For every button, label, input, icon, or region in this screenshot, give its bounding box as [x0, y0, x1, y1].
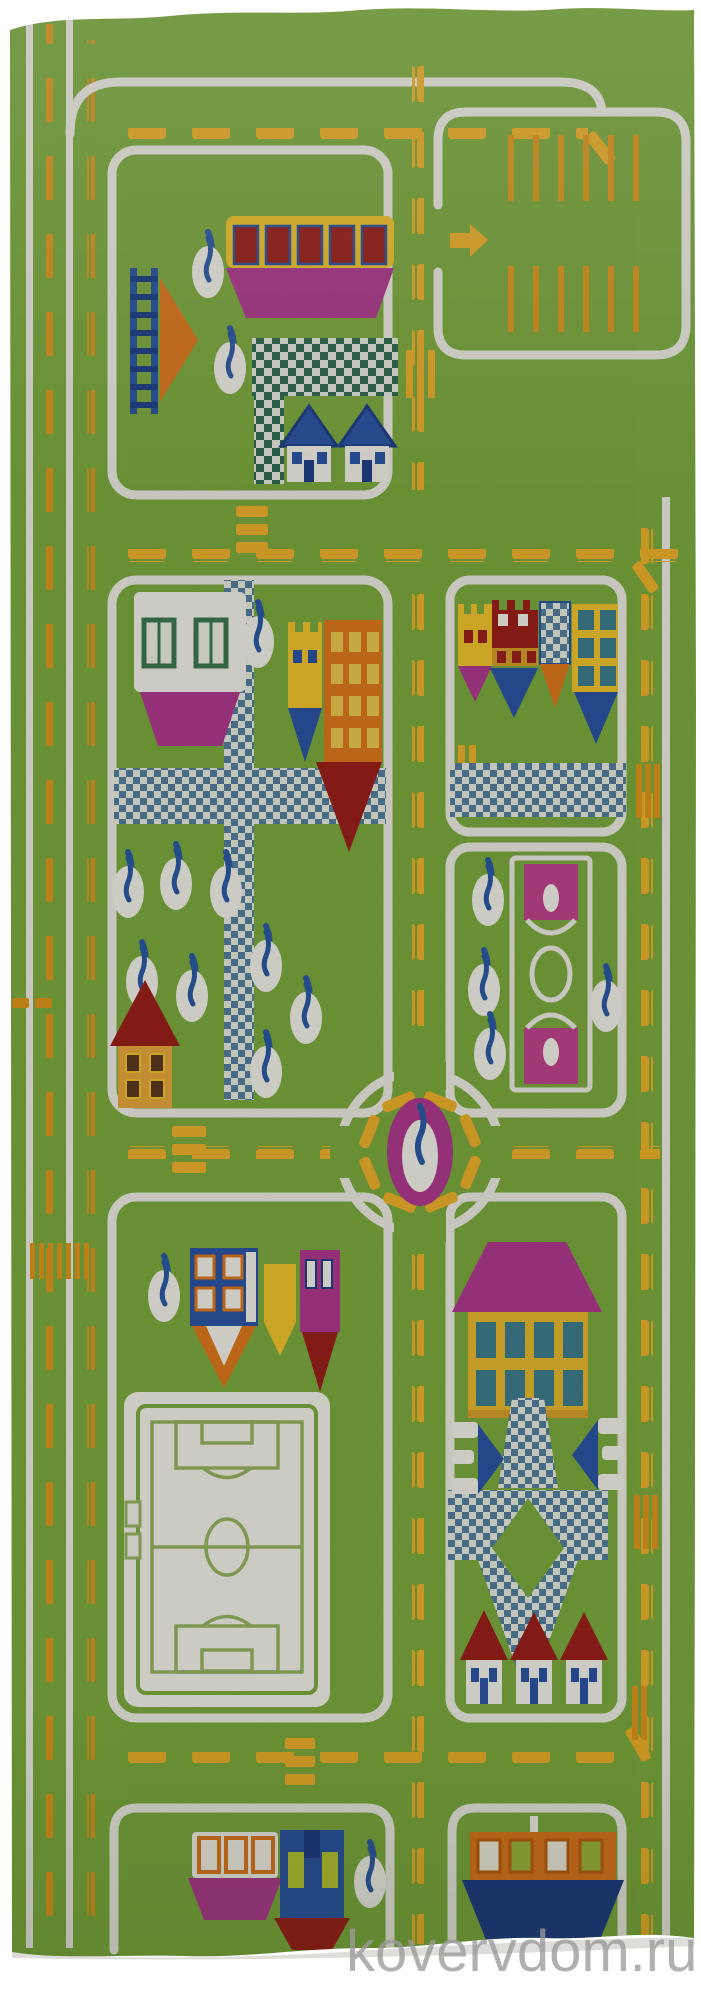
photo-vignette — [0, 0, 701, 2000]
watermark: kovervdom.ru — [346, 1918, 697, 1985]
product-photo: kovervdom.ru — [0, 0, 701, 2000]
play-rug — [0, 0, 701, 2000]
